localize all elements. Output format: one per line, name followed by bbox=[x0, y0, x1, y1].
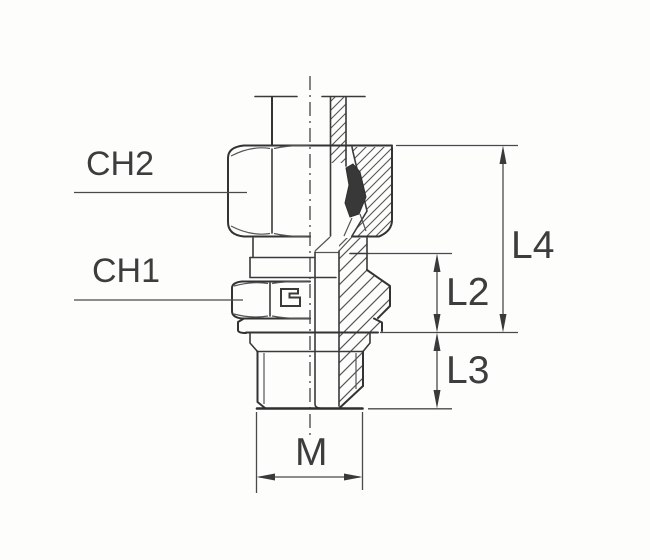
nut-left-edge bbox=[228, 146, 244, 237]
hatch-stud bbox=[339, 333, 370, 408]
flange-left bbox=[238, 319, 246, 334]
fitting-diagram: CH2 CH1 L4 L2 L3 M bbox=[0, 0, 650, 560]
l2-arrow-down bbox=[434, 314, 441, 333]
drawing-canvas: CH2 CH1 L4 L2 L3 M bbox=[0, 0, 650, 560]
leader-lines: CH2 CH1 bbox=[74, 145, 247, 300]
label-ch1: CH1 bbox=[92, 252, 160, 290]
label-ch2: CH2 bbox=[86, 145, 154, 183]
label-l3: L3 bbox=[446, 349, 489, 392]
dimension-l3: L3 bbox=[368, 333, 489, 409]
l3-arrow-down bbox=[434, 390, 441, 409]
bore-left-wall bbox=[315, 252, 321, 408]
nut-chamfer-arcs-bottom bbox=[231, 226, 310, 236]
hatch-body bbox=[339, 238, 390, 332]
l3-arrow-up bbox=[434, 333, 441, 352]
stud-collar-left bbox=[250, 333, 258, 352]
label-l4: L4 bbox=[511, 224, 554, 267]
nut-chamfer-arcs-top bbox=[231, 146, 310, 156]
hatch-tube-wall bbox=[331, 97, 347, 163]
l4-arrow-down bbox=[500, 314, 507, 333]
label-m: M bbox=[295, 431, 328, 474]
m-arrow-left bbox=[257, 474, 276, 481]
label-l2: L2 bbox=[446, 271, 489, 314]
hex1-chamfer-arcs bbox=[234, 282, 310, 319]
brand-mark bbox=[281, 289, 300, 306]
l2-arrow-up bbox=[434, 254, 441, 273]
m-arrow-right bbox=[344, 474, 363, 481]
l4-arrow-up bbox=[500, 146, 507, 165]
